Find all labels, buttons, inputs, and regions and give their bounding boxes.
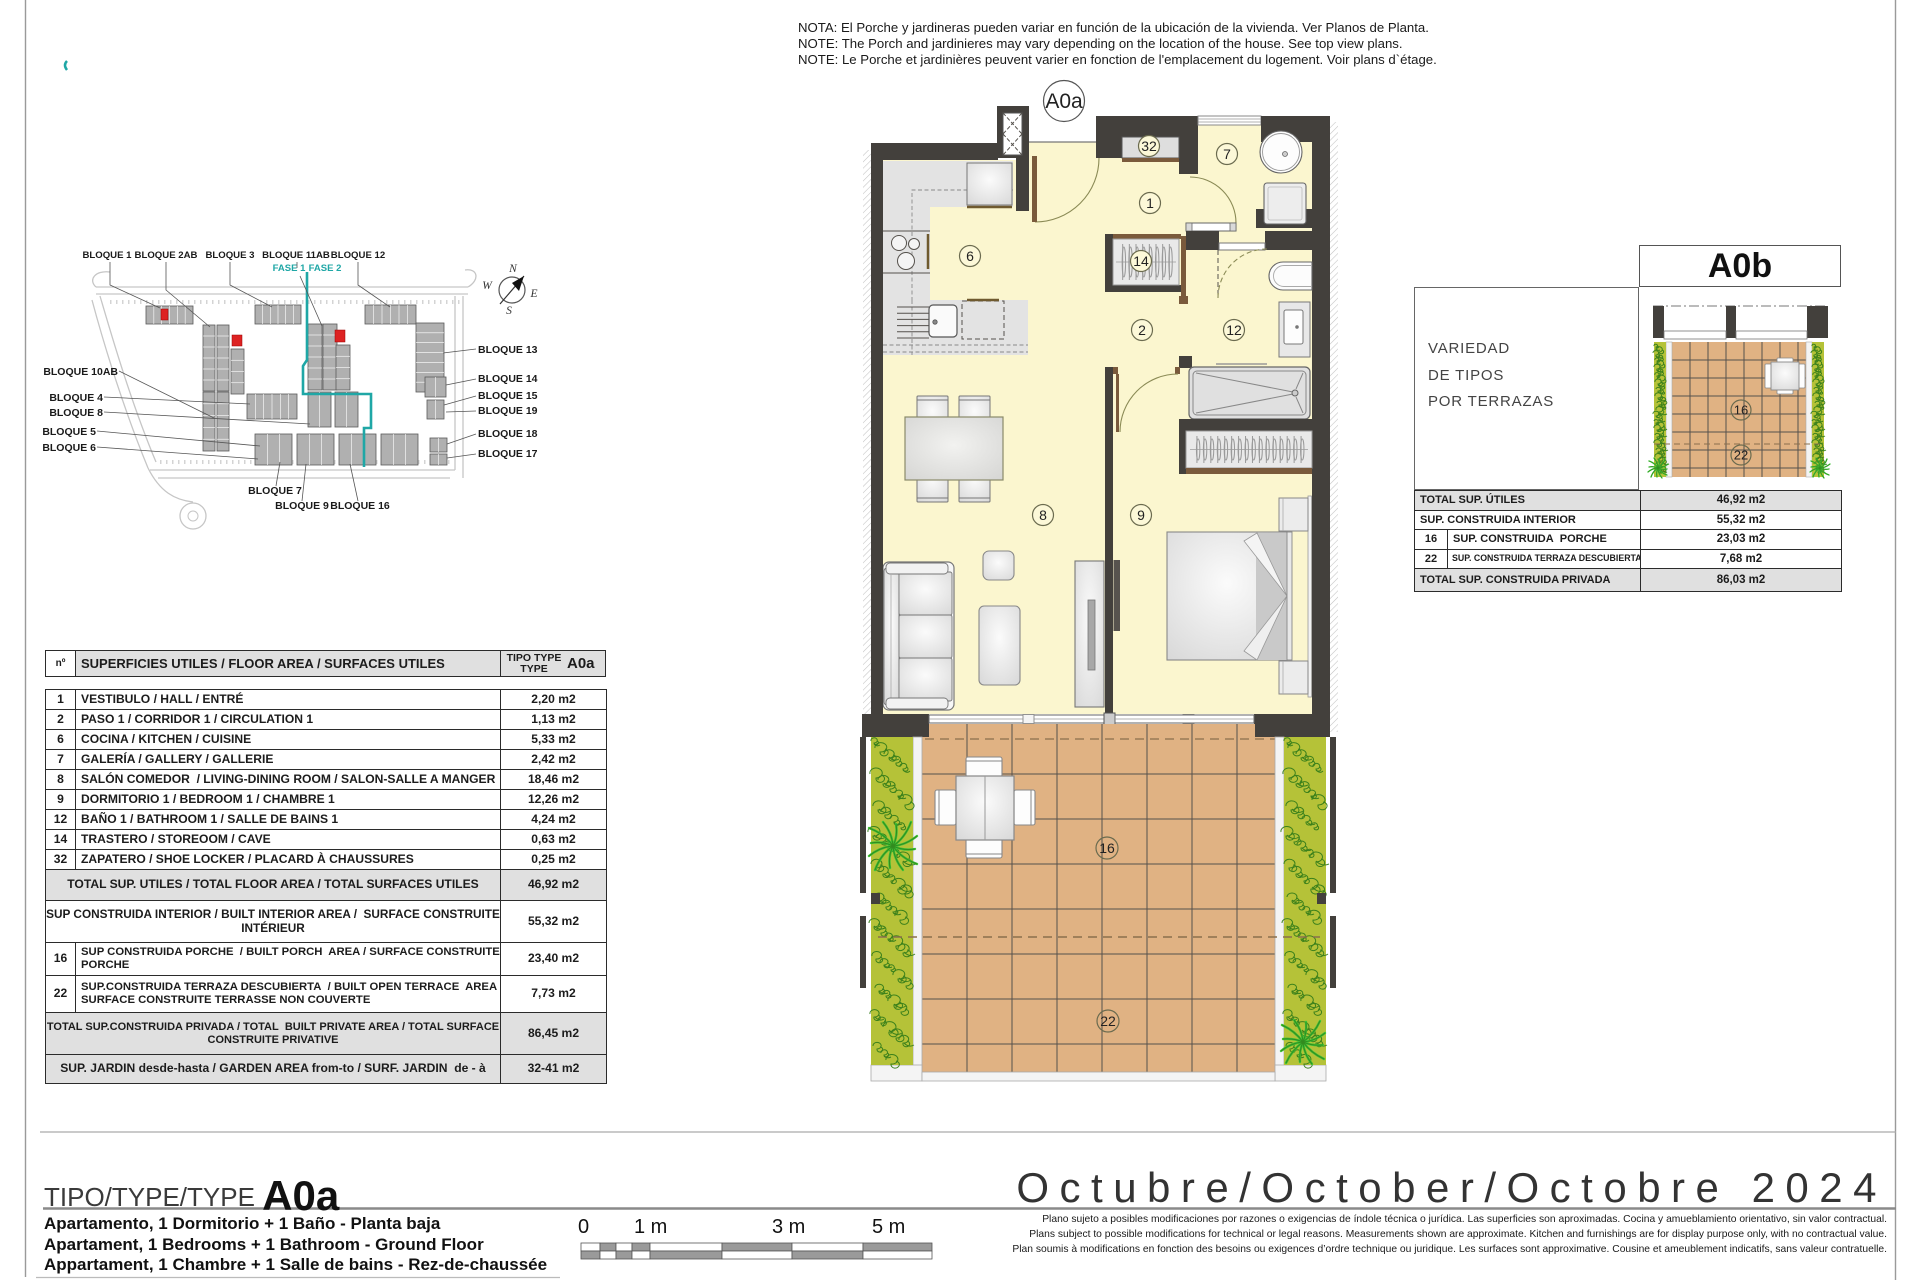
svg-text:BLOQUE 7: BLOQUE 7 xyxy=(248,485,302,497)
svg-text:BLOQUE 6: BLOQUE 6 xyxy=(42,442,96,454)
svg-text:8: 8 xyxy=(1039,507,1047,523)
svg-text:9: 9 xyxy=(1137,507,1145,523)
svg-text:FASE 1: FASE 1 xyxy=(273,263,306,274)
svg-text:BLOQUE 12: BLOQUE 12 xyxy=(331,250,385,261)
svg-text:BLOQUE 3: BLOQUE 3 xyxy=(205,250,254,261)
svg-text:BLOQUE 11AB: BLOQUE 11AB xyxy=(262,250,330,261)
svg-text:BLOQUE 4: BLOQUE 4 xyxy=(49,392,103,404)
svg-text:16: 16 xyxy=(1734,403,1748,418)
svg-text:32: 32 xyxy=(1141,138,1157,154)
svg-text:16: 16 xyxy=(1099,840,1115,856)
svg-text:BLOQUE 19: BLOQUE 19 xyxy=(478,405,538,417)
svg-text:BLOQUE 15: BLOQUE 15 xyxy=(478,390,538,402)
svg-text:BLOQUE 18: BLOQUE 18 xyxy=(478,428,538,440)
svg-text:N: N xyxy=(508,263,518,275)
svg-text:12: 12 xyxy=(1226,322,1242,338)
svg-text:22: 22 xyxy=(1100,1013,1116,1029)
svg-text:E: E xyxy=(529,288,537,300)
svg-text:FASE 2: FASE 2 xyxy=(309,263,342,274)
svg-text:2: 2 xyxy=(1138,322,1146,338)
svg-text:BLOQUE 5: BLOQUE 5 xyxy=(42,426,96,438)
svg-text:BLOQUE 10AB: BLOQUE 10AB xyxy=(43,366,118,378)
svg-text:W: W xyxy=(482,280,493,292)
svg-text:BLOQUE 8: BLOQUE 8 xyxy=(49,407,103,419)
svg-text:6: 6 xyxy=(966,248,974,264)
svg-text:1: 1 xyxy=(1146,195,1154,211)
svg-text:14: 14 xyxy=(1133,253,1149,269)
svg-text:BLOQUE 2AB: BLOQUE 2AB xyxy=(135,250,198,261)
svg-text:BLOQUE 1: BLOQUE 1 xyxy=(82,250,132,261)
svg-text:7: 7 xyxy=(1223,146,1231,162)
svg-text:BLOQUE 9: BLOQUE 9 xyxy=(275,500,329,512)
svg-text:22: 22 xyxy=(1734,448,1748,463)
svg-text:BLOQUE 14: BLOQUE 14 xyxy=(478,373,538,385)
svg-text:A0a: A0a xyxy=(1045,90,1083,113)
svg-text:BLOQUE 13: BLOQUE 13 xyxy=(478,344,538,356)
svg-text:S: S xyxy=(506,305,512,317)
svg-text:BLOQUE 16: BLOQUE 16 xyxy=(330,500,390,512)
svg-text:BLOQUE 17: BLOQUE 17 xyxy=(478,448,538,460)
